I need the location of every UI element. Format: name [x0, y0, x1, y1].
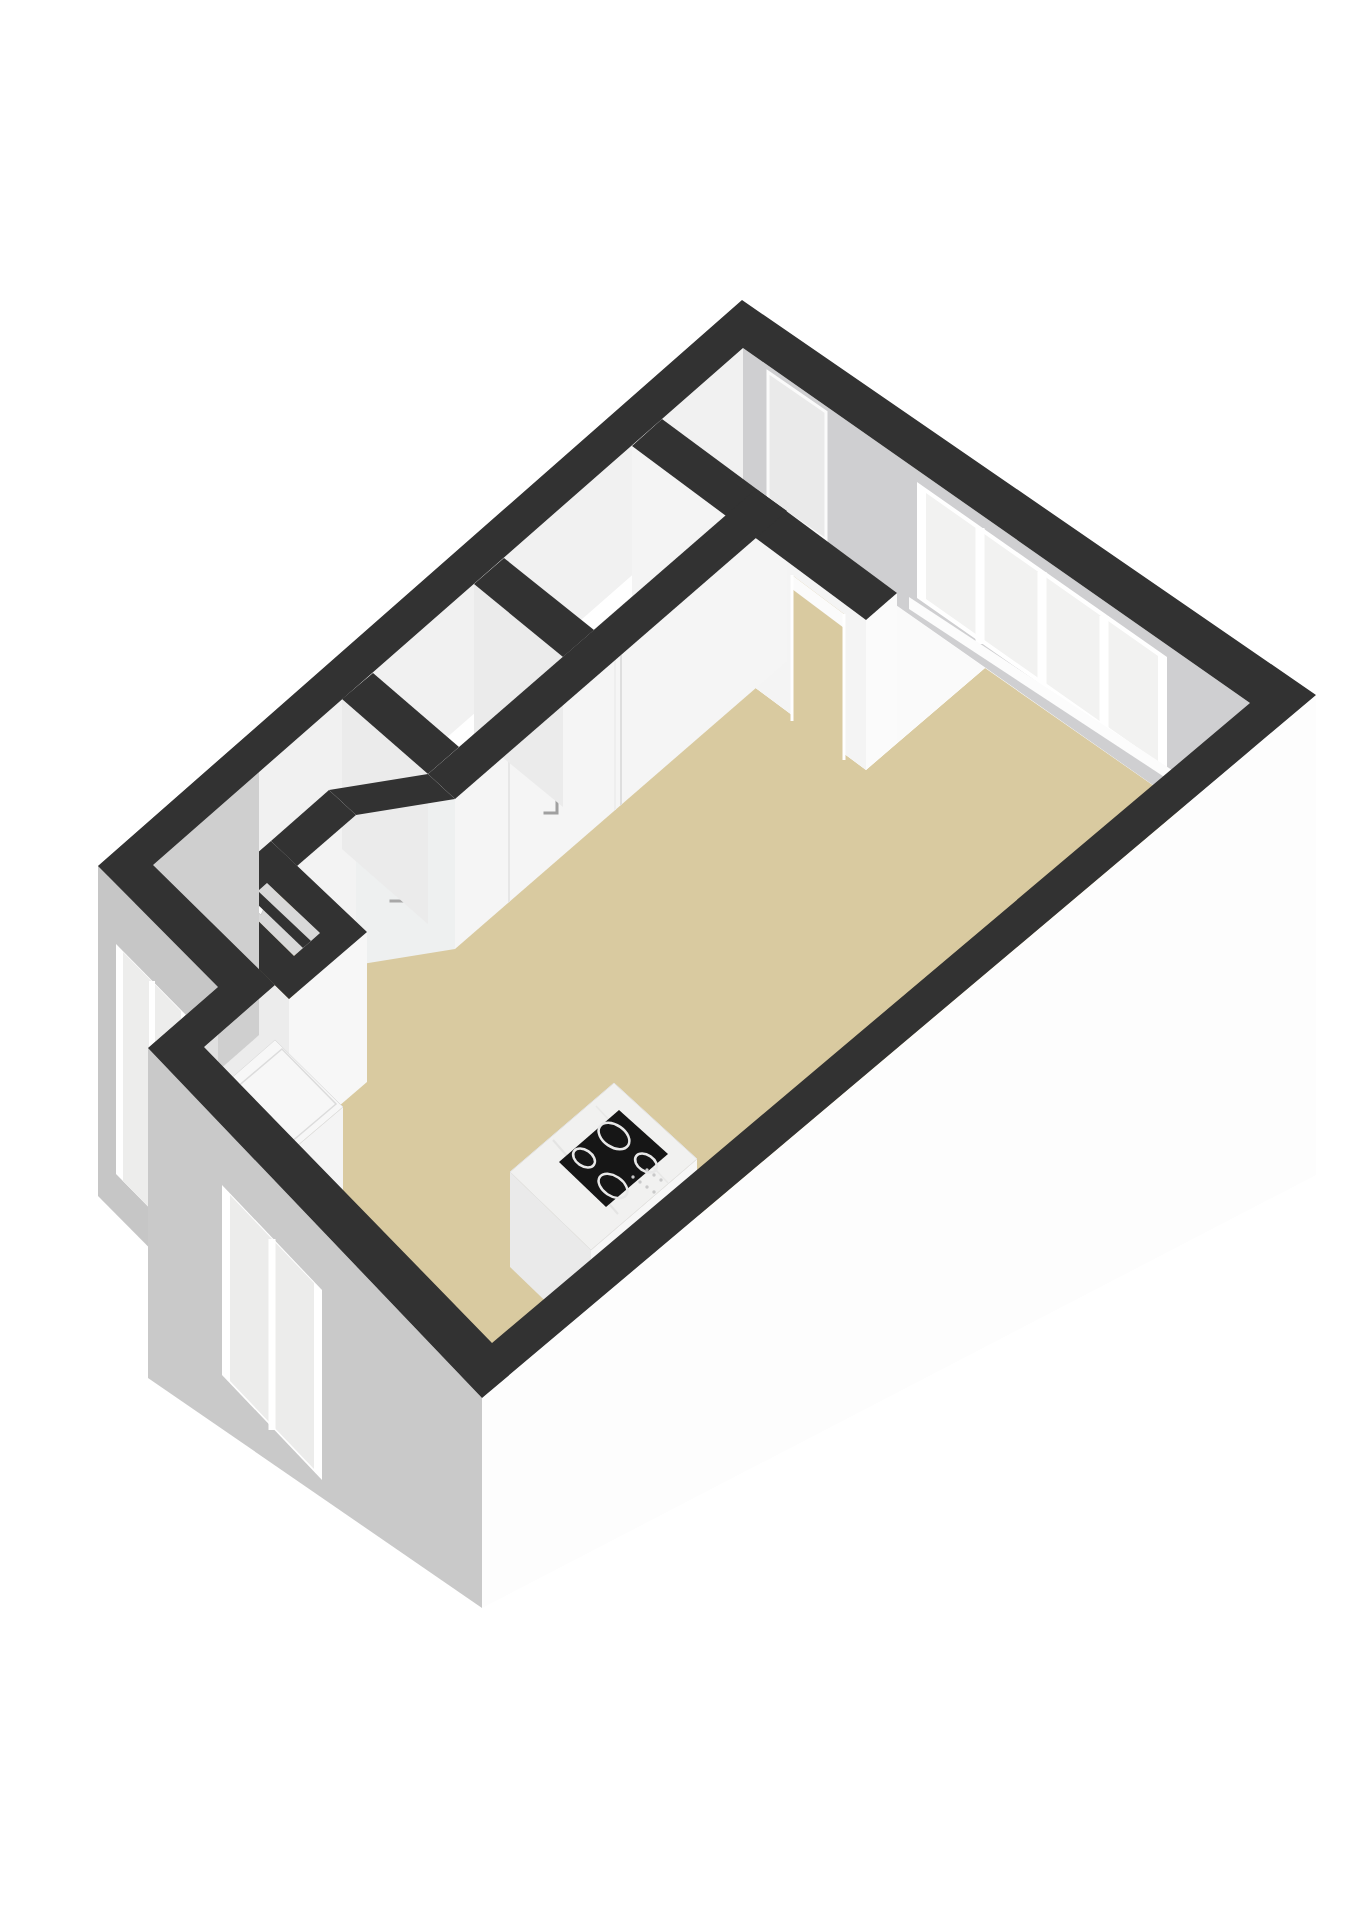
cooktop-controls-dot-5: [645, 1168, 648, 1171]
cooktop-controls-dot-6: [652, 1173, 655, 1176]
hall-partition-end-face: [866, 593, 897, 770]
cooktop-controls-dot-7: [659, 1178, 662, 1181]
cooktop-controls-dot-4: [652, 1190, 655, 1193]
cooktop-controls-dot-3: [645, 1185, 648, 1188]
floorplan-3d-view: [0, 0, 1358, 1920]
cooktop-controls-dot-2: [638, 1180, 641, 1183]
floorplan-page: [0, 0, 1358, 1920]
cooktop-controls-dot-1: [631, 1175, 634, 1178]
